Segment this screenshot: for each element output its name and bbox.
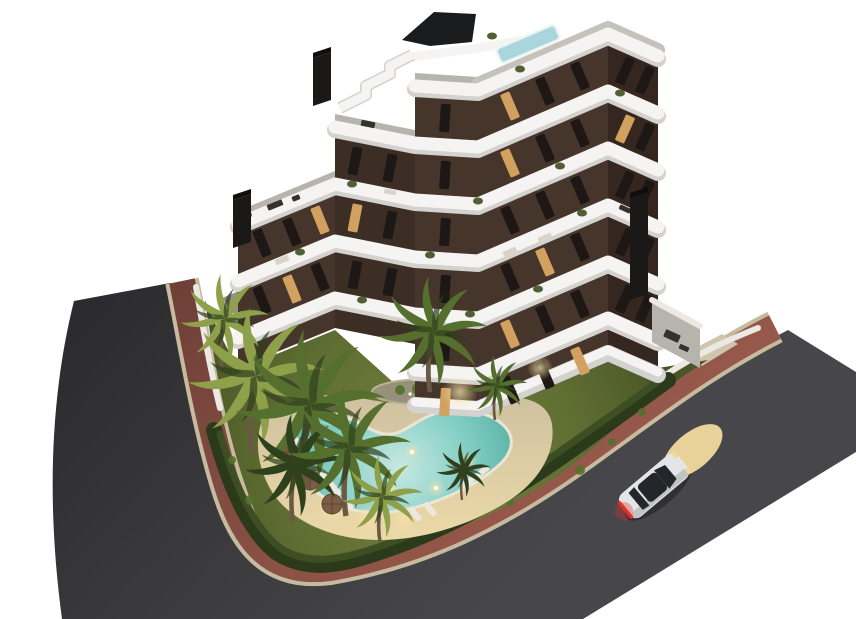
rooftop-stair bbox=[340, 55, 412, 108]
scene-svg: Aerial dusk 3D architectural rendering o… bbox=[0, 0, 856, 619]
rooftop-solar-panel bbox=[402, 12, 476, 46]
architectural-render: Aerial dusk 3D architectural rendering o… bbox=[0, 0, 856, 619]
ground-terrace-right bbox=[652, 300, 700, 368]
